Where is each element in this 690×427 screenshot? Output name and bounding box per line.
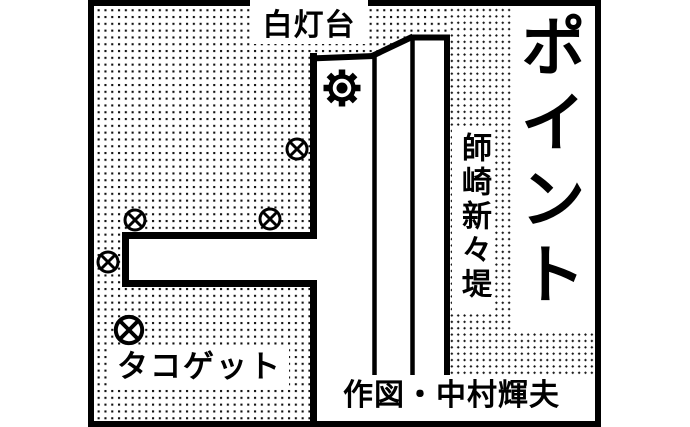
- fishing-spot-marker: [125, 210, 145, 230]
- breakwater-label: 師崎新々堤: [458, 132, 488, 312]
- lighthouse-icon: [324, 70, 361, 107]
- page-title: ポイント: [514, 12, 580, 332]
- fishing-spot-marker-large: [116, 317, 142, 343]
- tako-spot-label: タコゲット: [110, 348, 289, 386]
- lighthouse-label: 白灯台: [250, 0, 368, 44]
- fishing-spot-marker: [260, 209, 280, 229]
- fishing-map: 白灯台 ポイント 師崎新々堤 タコゲット 作図・中村輝夫: [0, 0, 690, 427]
- breakwater-arm: [122, 232, 317, 287]
- credit-label: 作図・中村輝夫: [343, 379, 560, 413]
- fishing-spot-marker: [98, 252, 118, 272]
- map-graphics: [0, 0, 690, 427]
- fishing-spot-marker: [287, 139, 307, 159]
